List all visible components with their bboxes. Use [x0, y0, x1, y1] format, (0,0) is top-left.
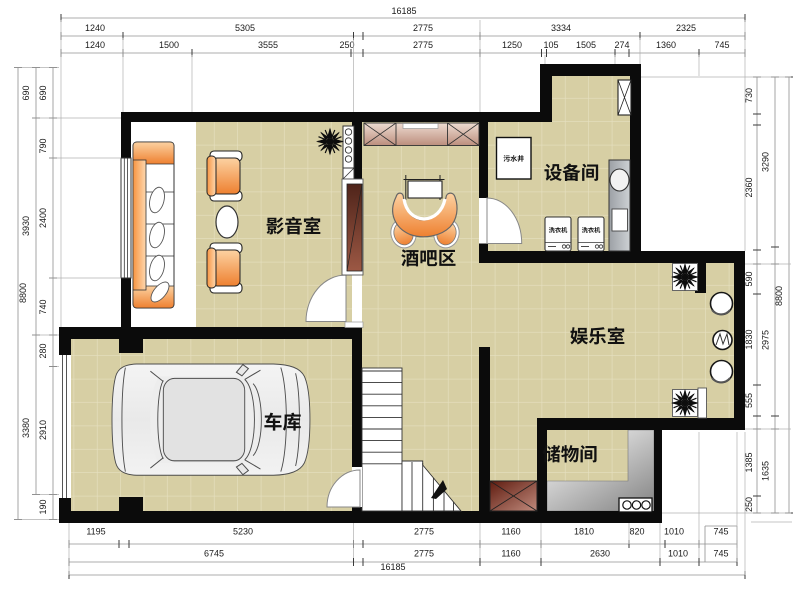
svg-text:3555: 3555 — [258, 40, 278, 50]
svg-text:2910: 2910 — [38, 420, 48, 440]
svg-text:740: 740 — [38, 299, 48, 314]
svg-text:590: 590 — [744, 271, 754, 286]
svg-text:1160: 1160 — [501, 549, 520, 559]
svg-text:250: 250 — [744, 497, 754, 512]
svg-text:745: 745 — [713, 549, 728, 559]
svg-text:2775: 2775 — [414, 527, 434, 537]
svg-text:1635: 1635 — [761, 461, 771, 481]
svg-text:1240: 1240 — [85, 40, 105, 50]
svg-text:1500: 1500 — [159, 40, 179, 50]
svg-text:1195: 1195 — [86, 527, 105, 537]
svg-text:2400: 2400 — [38, 208, 48, 228]
svg-text:820: 820 — [629, 527, 644, 537]
svg-text:280: 280 — [38, 343, 48, 358]
svg-text:16185: 16185 — [380, 562, 405, 572]
svg-text:1360: 1360 — [656, 40, 676, 50]
svg-text:1010: 1010 — [668, 549, 688, 559]
svg-text:6745: 6745 — [204, 549, 224, 559]
svg-text:2360: 2360 — [744, 177, 754, 197]
svg-text:2325: 2325 — [676, 23, 696, 33]
svg-text:3290: 3290 — [761, 152, 771, 172]
svg-text:790: 790 — [38, 138, 48, 153]
svg-text:1250: 1250 — [502, 40, 522, 50]
svg-text:105: 105 — [543, 40, 558, 50]
svg-text:8800: 8800 — [18, 283, 28, 303]
svg-text:1830: 1830 — [744, 329, 754, 349]
svg-text:2775: 2775 — [413, 23, 433, 33]
svg-text:274: 274 — [614, 40, 629, 50]
svg-text:1160: 1160 — [501, 527, 520, 537]
svg-text:730: 730 — [744, 88, 754, 103]
svg-text:745: 745 — [714, 40, 729, 50]
svg-text:3380: 3380 — [21, 418, 31, 438]
svg-text:5305: 5305 — [235, 23, 255, 33]
svg-text:190: 190 — [38, 499, 48, 514]
svg-text:2975: 2975 — [761, 330, 771, 350]
svg-text:690: 690 — [38, 85, 48, 100]
svg-text:3930: 3930 — [21, 216, 31, 236]
svg-text:1810: 1810 — [574, 527, 594, 537]
svg-text:1240: 1240 — [85, 23, 105, 33]
svg-text:2775: 2775 — [413, 40, 433, 50]
svg-text:555: 555 — [744, 393, 754, 408]
svg-text:690: 690 — [21, 85, 31, 100]
svg-text:16185: 16185 — [391, 6, 416, 16]
svg-text:1010: 1010 — [664, 527, 684, 537]
svg-text:8800: 8800 — [774, 286, 784, 306]
svg-text:250: 250 — [339, 40, 354, 50]
svg-text:3334: 3334 — [551, 23, 571, 33]
svg-text:5230: 5230 — [233, 527, 253, 537]
svg-text:745: 745 — [713, 527, 728, 537]
svg-text:1385: 1385 — [744, 452, 754, 472]
svg-text:2775: 2775 — [414, 549, 434, 559]
svg-text:1505: 1505 — [576, 40, 596, 50]
svg-text:2630: 2630 — [590, 549, 610, 559]
